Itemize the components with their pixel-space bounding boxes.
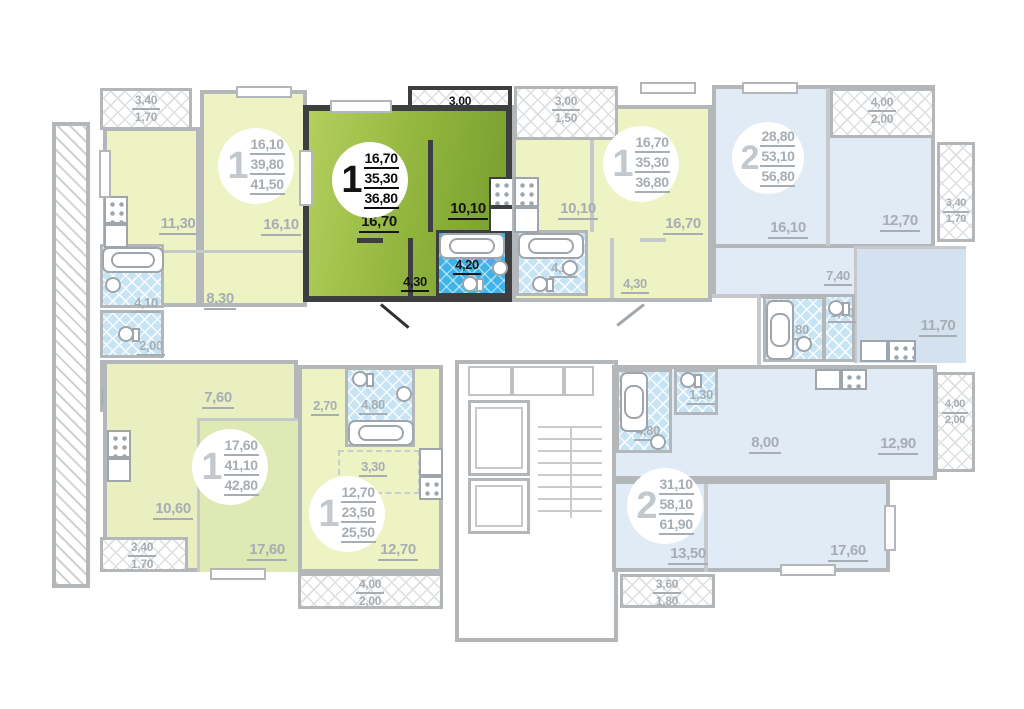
window — [210, 568, 266, 580]
sink-icon — [650, 434, 666, 450]
balcony-area-label: 3,001,50 — [536, 94, 596, 126]
floor-plan: 3,401,70 11,30 16,10 8,30 4,10 2,00 3,30… — [0, 0, 1024, 709]
elevator[interactable] — [468, 400, 530, 476]
balcony-area-label: 4,002,00 — [936, 398, 974, 427]
sink-icon — [796, 336, 812, 352]
bathtub-icon — [620, 372, 648, 432]
room-area-label: 4,30 — [396, 275, 434, 292]
balcony-area-label: 3,401,70 — [112, 540, 172, 572]
room-area-label: 8,00 — [743, 435, 787, 454]
room-area-label: 16,70 — [660, 216, 706, 235]
room-area-label: 10,10 — [555, 201, 601, 220]
sink-icon — [492, 260, 508, 276]
apartment-d-badge[interactable]: 2 28,8053,1056,80 — [732, 122, 804, 194]
toilet-icon — [532, 276, 552, 291]
room-area-label: 12,70 — [878, 213, 922, 232]
room-area-label: 4,20 — [449, 258, 485, 275]
stove-icon — [489, 177, 514, 207]
balcony-area-label: 4,002,00 — [340, 577, 400, 609]
bathtub-icon — [766, 300, 794, 360]
room-area-label: 3,30 — [355, 460, 391, 477]
room-area-label: 1,30 — [684, 388, 718, 405]
toilet-icon — [118, 326, 138, 341]
partition — [428, 140, 433, 232]
shaft — [564, 366, 594, 396]
window — [742, 82, 798, 94]
window — [236, 86, 292, 98]
room-area-label: 11,30 — [156, 216, 200, 235]
apartment-d-balcony-right — [937, 142, 975, 242]
window — [99, 150, 111, 198]
shaft — [512, 366, 564, 396]
entrance-door[interactable] — [616, 303, 645, 326]
room-area-label: 16,10 — [259, 217, 303, 236]
stove-icon — [514, 177, 539, 207]
room-area-label: 16,10 — [766, 220, 810, 239]
window — [330, 100, 392, 113]
apartment-e-badge[interactable]: 1 17,6041,1042,80 — [192, 429, 268, 505]
bathtub-icon — [348, 420, 414, 446]
room-area-label: 4,10 — [129, 296, 163, 313]
toilet-icon — [462, 276, 482, 291]
balcony-area-label: 3,401,70 — [116, 93, 176, 125]
window — [884, 505, 896, 551]
room-area-label: 7,60 — [196, 390, 240, 409]
room-area-label: 10,60 — [151, 501, 195, 520]
fridge-icon — [514, 207, 539, 233]
fridge-icon — [489, 207, 514, 233]
room-area-label: 4,80 — [355, 398, 391, 415]
stove-icon — [104, 196, 128, 224]
room-area-label: 17,60 — [245, 542, 289, 561]
toilet-icon — [828, 300, 848, 315]
balcony-area-label: 4,002,00 — [852, 95, 912, 127]
window — [780, 564, 836, 576]
entrance-door[interactable] — [380, 303, 410, 328]
apartment-c-badge[interactable]: 1 16,7035,3036,80 — [603, 126, 679, 202]
kitchen-sink-icon — [815, 369, 841, 390]
bathtub-icon — [102, 247, 164, 273]
sink-icon — [105, 277, 121, 293]
room-area-label: 8,30 — [198, 291, 242, 310]
room-area-label: 17,60 — [826, 543, 870, 562]
window — [299, 150, 313, 206]
bathtub-icon — [518, 233, 584, 259]
partition — [640, 238, 666, 242]
apartment-b-badge[interactable]: 1 16,7035,3036,80 — [332, 142, 408, 218]
toilet-icon — [352, 371, 372, 386]
partition — [610, 238, 614, 298]
apartment-g-badge[interactable]: 2 31,1058,1061,90 — [627, 468, 703, 544]
room-area-label: 7,40 — [818, 269, 858, 286]
sink-icon — [562, 260, 578, 276]
room-area-label: 10,10 — [445, 201, 491, 220]
room-area-label: 13,50 — [666, 546, 710, 565]
stove-icon — [841, 369, 867, 390]
corridor-end-wall — [757, 295, 761, 365]
stove-icon — [419, 476, 443, 500]
apartment-f-badge[interactable]: 1 12,7023,5025,50 — [309, 476, 385, 552]
elevator[interactable] — [468, 478, 530, 534]
window — [640, 82, 696, 94]
partition — [357, 238, 383, 243]
fridge-icon — [419, 448, 443, 476]
toilet-icon — [680, 372, 700, 387]
kitchen-sink-icon — [104, 224, 128, 248]
stove-icon — [107, 430, 131, 458]
sink-icon — [396, 386, 412, 402]
room-area-label: 12,90 — [876, 436, 920, 455]
stairs[interactable] — [538, 426, 602, 518]
room-area-label: 11,70 — [916, 318, 960, 337]
room-area-label: 12,70 — [376, 542, 420, 561]
kitchen-sink-icon — [107, 458, 131, 482]
corridor-wall — [712, 294, 760, 298]
room-area-label: 2,70 — [307, 399, 343, 416]
balcony-area-label: 3,401,70 — [938, 197, 974, 226]
balcony-area-label: 3,601,80 — [633, 577, 701, 609]
room-area-label: 4,30 — [616, 277, 654, 294]
shaft — [468, 366, 512, 396]
stove-icon — [888, 340, 916, 362]
apartment-a-badge[interactable]: 1 16,1039,8041,50 — [218, 128, 294, 204]
side-shaft-hatch — [52, 122, 90, 588]
bathtub-icon — [439, 233, 505, 259]
kitchen-sink-icon — [860, 340, 888, 362]
